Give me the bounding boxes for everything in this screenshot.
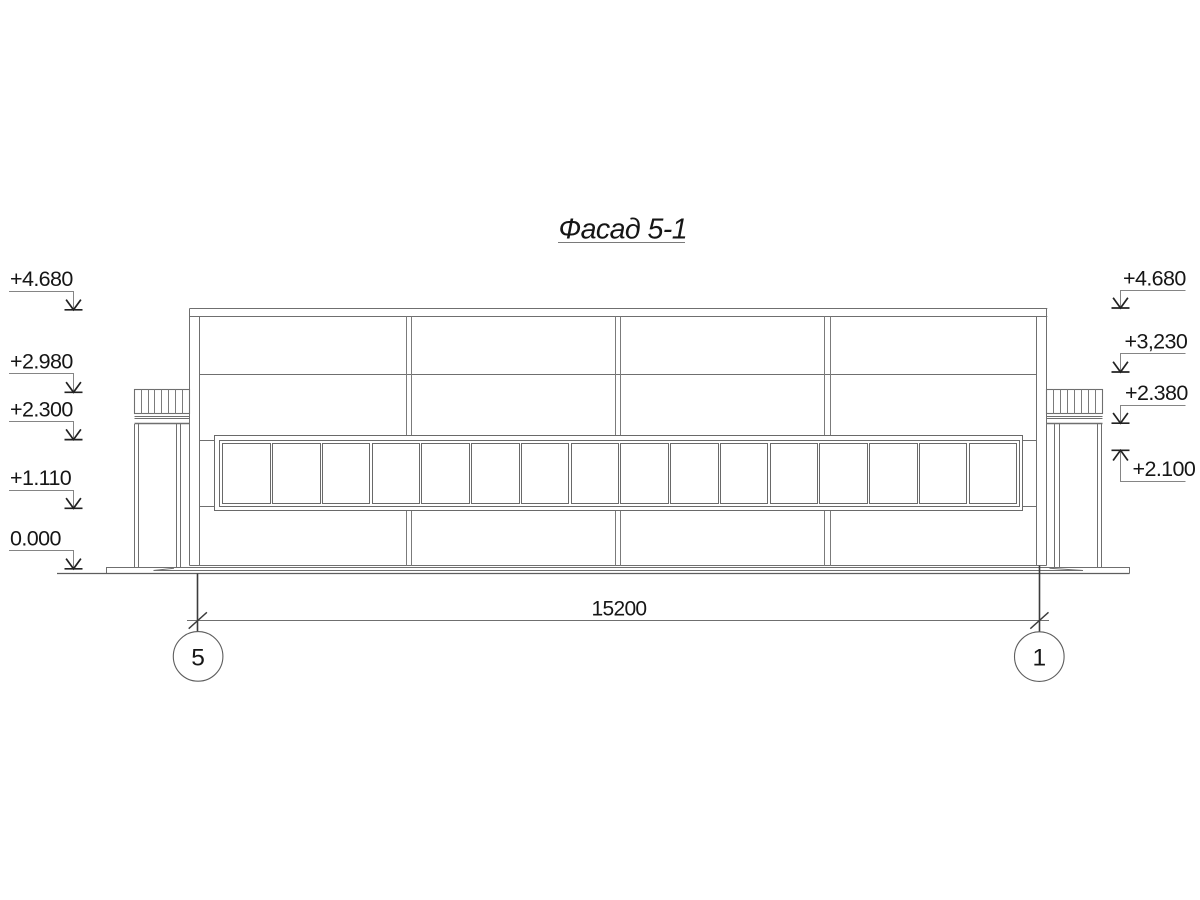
svg-text:+2.300: +2.300 <box>10 398 73 422</box>
svg-text:+2.100: +2.100 <box>1133 457 1196 481</box>
svg-text:+4.680: +4.680 <box>10 267 73 291</box>
svg-text:+2.980: +2.980 <box>10 350 73 374</box>
svg-text:Фасад 5-1: Фасад 5-1 <box>559 213 688 245</box>
svg-text:+2.380: +2.380 <box>1125 381 1188 405</box>
svg-text:+3,230: +3,230 <box>1125 330 1188 354</box>
svg-text:5: 5 <box>191 645 205 672</box>
svg-text:1: 1 <box>1032 645 1046 672</box>
svg-text:0.000: 0.000 <box>10 527 61 551</box>
svg-text:15200: 15200 <box>592 597 647 620</box>
svg-text:+1.110: +1.110 <box>10 466 72 490</box>
svg-text:+4.680: +4.680 <box>1123 266 1186 290</box>
